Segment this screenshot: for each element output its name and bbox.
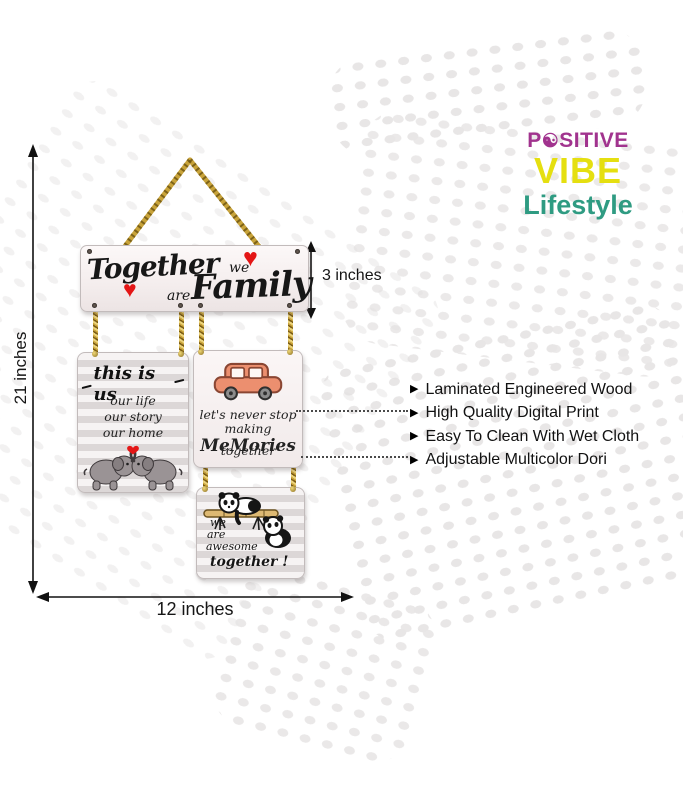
yin-yang-icon: ☯ [542, 131, 560, 152]
brand-logo: P☯SITIVE VIBE Lifestyle [503, 130, 653, 219]
rope-knot [287, 349, 293, 355]
brand-positive-suffix: SITIVE [559, 129, 629, 152]
callout-dotted-line-dori [301, 456, 408, 458]
feature-label: Adjustable Multicolor Dori [425, 451, 606, 469]
plank-text-line: together ! [210, 554, 288, 570]
plank-hole [178, 303, 183, 308]
brand-vibe: VIBE [503, 153, 653, 189]
plank-this-is-us: this is us our life our story our home [77, 352, 189, 493]
feature-label: High Quality Digital Print [425, 404, 598, 422]
rope-segment [288, 306, 293, 352]
rope-segment [199, 306, 204, 352]
bullet-arrow-icon: ▶ [410, 408, 418, 419]
plank-text-line: our story [78, 409, 188, 425]
bullet-arrow-icon: ▶ [410, 455, 418, 466]
brand-positive-prefix: P [527, 129, 542, 152]
brand-positive: P☯SITIVE [503, 130, 653, 151]
feature-item: ▶ Adjustable Multicolor Dori [410, 449, 639, 473]
top-plank: Together we ♥ ♥ are Family [80, 245, 309, 312]
feature-label: Easy To Clean With Wet Cloth [425, 428, 639, 446]
product-infographic: 21 inches 12 inches 3 inches Together we… [0, 0, 683, 800]
plank-pandas: we are awesome together ! [196, 487, 305, 579]
plank-hole [92, 303, 97, 308]
bullet-arrow-icon: ▶ [410, 431, 418, 442]
feature-item: ▶ Laminated Engineered Wood [410, 378, 639, 402]
plank-hole [295, 249, 300, 254]
plank-text-line: awesome [206, 540, 258, 553]
feature-item: ▶ High Quality Digital Print [410, 402, 639, 426]
flourish-line [82, 385, 92, 389]
car-illustration [211, 358, 285, 404]
rope-knot [92, 351, 98, 357]
plank-hole [198, 303, 203, 308]
top-plank-word-are: are [167, 288, 190, 304]
elephants-illustration [81, 439, 185, 491]
feature-label: Laminated Engineered Wood [425, 381, 632, 399]
plank-text-line: together [194, 443, 302, 458]
plank-memories: let's never stop making MeMories togethe… [193, 350, 303, 468]
flourish-line [175, 379, 185, 383]
brand-lifestyle: Lifestyle [503, 192, 653, 219]
plank-text-lines: our life our story our home [78, 393, 188, 441]
plank-hole [87, 249, 92, 254]
width-dimension-label: 12 inches [115, 599, 275, 620]
callout-dotted-line-print [296, 410, 408, 412]
rope-knot [202, 486, 208, 492]
rope-knot [178, 351, 184, 357]
plank-text-word: making [225, 421, 272, 436]
plank-text-line: let's never stop [194, 407, 302, 422]
feature-list: ▶ Laminated Engineered Wood ▶ High Quali… [410, 378, 639, 472]
rope-knot [290, 486, 296, 492]
plank-height-dimension-label: 3 inches [322, 267, 382, 285]
bullet-arrow-icon: ▶ [410, 384, 418, 395]
feature-item: ▶ Easy To Clean With Wet Cloth [410, 425, 639, 449]
heart-icon: ♥ [123, 276, 137, 303]
plank-hole [287, 303, 292, 308]
height-dimension-label: 21 inches [11, 325, 33, 411]
rope-knot [198, 349, 204, 355]
plank-text-line: our life [78, 393, 188, 409]
top-plank-word-family: Family [190, 264, 311, 308]
